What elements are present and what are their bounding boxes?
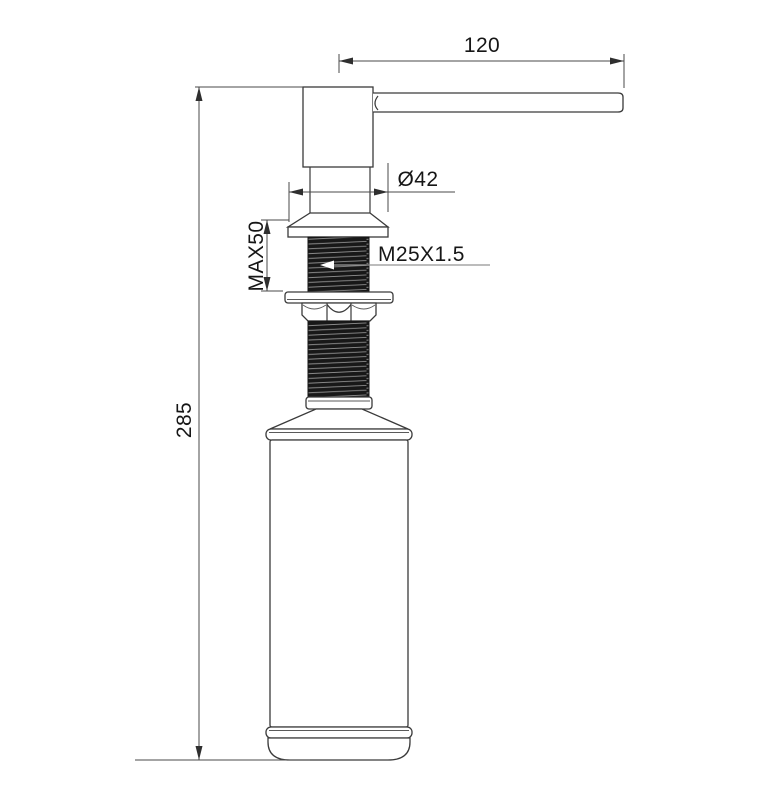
dimension-label-d42: Ø42 <box>398 168 439 191</box>
technical-drawing-canvas: 120 285 Ø42 MAX50 M25X1.5 <box>0 0 757 800</box>
thread-lower <box>308 321 369 397</box>
arrowhead-left-icon <box>339 58 353 65</box>
washer <box>285 292 393 303</box>
thread-spec-label: M25X1.5 <box>378 243 465 266</box>
bottle-shoulder <box>270 409 408 429</box>
arrowhead-left-icon <box>289 189 303 196</box>
dimension-label-285: 285 <box>173 402 196 438</box>
arrowhead-right-icon <box>374 189 388 196</box>
arrowhead-up-icon <box>196 87 203 101</box>
bottle-bottom-rim <box>266 727 412 738</box>
spout <box>373 93 623 112</box>
bottle-top-rim <box>266 429 412 440</box>
dimension-label-120: 120 <box>464 34 500 57</box>
flange-base <box>288 227 388 237</box>
dispenser-figure <box>266 87 623 760</box>
extension-lines-120 <box>339 54 624 88</box>
flange-cone <box>288 213 388 227</box>
arrowhead-right-icon <box>610 58 624 65</box>
soap-dispenser-drawing: 120 285 Ø42 MAX50 M25X1.5 <box>0 0 757 800</box>
dimension-max-thickness: MAX50 <box>245 220 289 291</box>
arrowhead-down-icon <box>196 746 203 760</box>
hex-nut <box>302 303 376 321</box>
dimension-spout-length: 120 <box>339 34 624 88</box>
bottle-body <box>270 440 408 727</box>
bottle-base <box>268 738 410 760</box>
pump-neck <box>310 167 370 213</box>
dimension-label-max50: MAX50 <box>245 221 268 292</box>
pump-head <box>303 87 373 167</box>
collar-ring <box>306 397 372 409</box>
